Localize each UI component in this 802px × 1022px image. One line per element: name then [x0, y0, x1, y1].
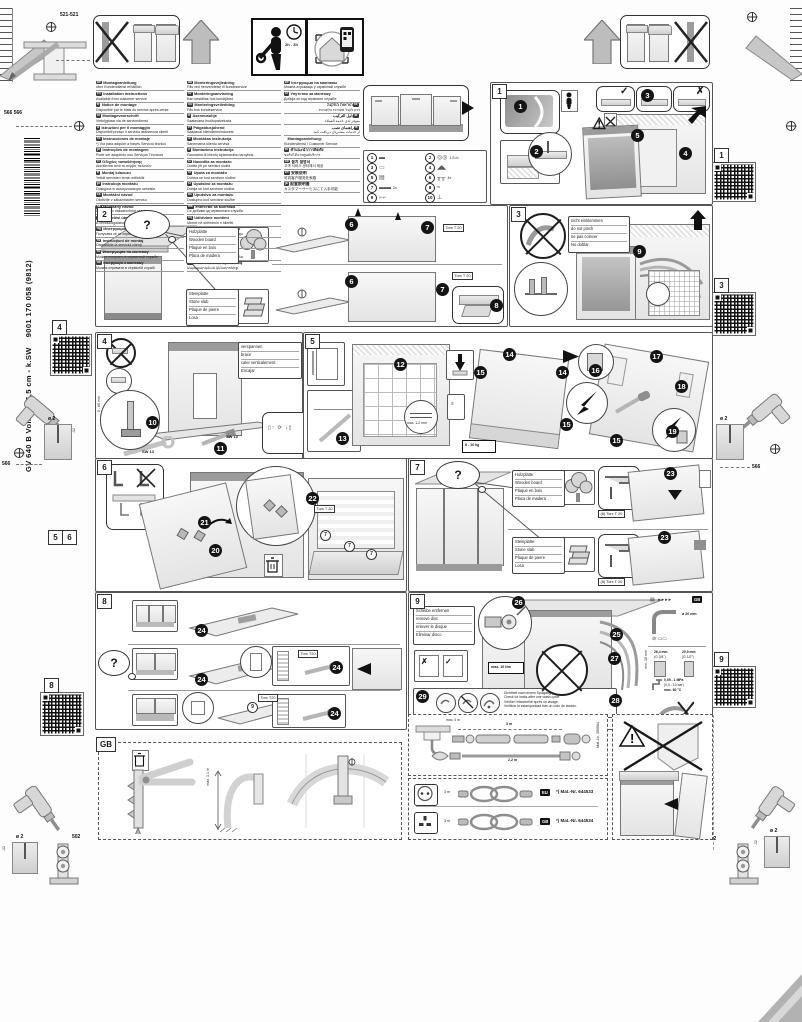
plinth [416, 564, 502, 571]
ext-max-length: max. 4 m [446, 718, 460, 722]
language-entry: etPaigaldusjuhend Saadaval klienditeenin… [187, 125, 281, 136]
qr-code-step1 [712, 162, 756, 202]
language-subtitle: Disponible par le biais du service après… [96, 108, 184, 112]
step-number-bubble: 2 [530, 145, 543, 158]
dim-566-left: 566 [2, 461, 10, 467]
hinge-part-icon [48, 842, 82, 886]
stone-note-box: Steinplatte Stone slab Plaque de pierre … [186, 289, 239, 326]
part-shape-icon: ⊥ [437, 195, 442, 201]
language-code-badge: tr [96, 171, 100, 175]
step-number-bubble: 15 [610, 434, 623, 447]
thread-right: 20,9 mm [682, 650, 696, 654]
min-clearance: min. 10 mm [644, 650, 648, 669]
door-corner [352, 648, 402, 690]
note-line: Wooden board [189, 237, 236, 245]
part-item: 5 ▤ [367, 173, 425, 183]
language-code-badge: th [284, 148, 289, 152]
arrow-right-icon [563, 350, 579, 363]
bracket-rail-drawing [272, 284, 354, 320]
stone-icon-box [237, 289, 269, 324]
language-title: คำแนะนำการติดตั้ง [291, 148, 324, 152]
note-line: Steinplatte [515, 539, 562, 547]
qr-code-step9 [712, 666, 756, 708]
pilot-hole-block [764, 836, 790, 868]
step-number-bubble: 19 [666, 425, 679, 438]
pencil-counter-icon [6, 32, 90, 82]
language-subtitle: Можна отримати в сервісній службі [96, 266, 184, 270]
language-entry: ja設置説明書 カスタマーサービスにて入手可能 [284, 182, 360, 193]
note-line: Eliminar disco [416, 632, 472, 639]
pressure-value: 0,05 - 1 MPa [664, 678, 683, 682]
step-number-bubble: 6 [345, 275, 358, 288]
language-subtitle: از خدمات مشتریان دریافت کنید [284, 130, 360, 134]
language-code-badge: mk [187, 205, 194, 209]
cord-mat-number: *) Mat.-Nr. 644534 [556, 818, 593, 824]
cord-length: 3 m [444, 790, 450, 795]
language-title: Montaj kılavuzu [102, 171, 131, 175]
language-title: Udhëzime montimi [194, 216, 229, 220]
brace-note: verspannen brace caler verticalement Enc… [238, 342, 302, 379]
install-time: 2h - 3h [285, 42, 298, 47]
insert-arrow-box [446, 350, 474, 380]
language-subtitle: Fås hos kundeservice [187, 108, 281, 112]
language-subtitle: *) Vía para adquirir a través Servicio t… [96, 142, 184, 146]
language-code-badge: it [96, 126, 100, 130]
registration-mark [46, 22, 56, 32]
part-item: 4 ◢◣ [425, 163, 483, 173]
note-line: Scheibe entfernen [416, 608, 472, 616]
bracket-rail-drawing [272, 222, 354, 258]
cabinet-profile-icon [627, 24, 645, 62]
socket-eu-icon [414, 784, 438, 806]
language-title: Інструкцыя па мантажы [291, 81, 337, 85]
cabinet-front [444, 488, 478, 566]
language-entry: heהוראות התקנה ניתן לקבל משירות הלקוחות [284, 103, 360, 114]
remove-disc-note: Scheibe entfernen remove disc enlever le… [413, 606, 475, 645]
step9-label: 9 [410, 594, 425, 609]
step-number-bubble: 7 [421, 221, 434, 234]
step-number-bubble: 4 [679, 147, 692, 160]
dim-566-right: 566 [752, 464, 760, 470]
order-number: 9001 170 058 (9812) [24, 260, 33, 337]
language-title: Uputstvo za montažu [194, 182, 233, 186]
part-number: 1 [367, 153, 377, 163]
language-subtitle: Saatavana huoltopalvelusta [187, 119, 281, 123]
step-number-bubble: 7 [436, 283, 449, 296]
language-subtitle: Disponibili presso il servizio assistenz… [96, 130, 184, 134]
step7-label: 7 [410, 460, 425, 475]
step2-label: 2 [97, 207, 112, 222]
language-entry: Montageanleitung: Kundendienst / Custome… [284, 136, 360, 147]
language-entry: hrUputa za montažu Dobiva se kod servisn… [187, 170, 281, 181]
row-divider [272, 264, 502, 265]
screwdriver-icon [612, 390, 652, 416]
language-entry: lvMontāžas instrukcija Saņemama klientu … [187, 136, 281, 147]
phone-scan-icon [310, 23, 360, 71]
language-title: Montageanleitung [103, 81, 136, 85]
cabinet-variant-thumb [132, 600, 178, 632]
dispose-box [264, 554, 283, 577]
drill-depth: -12 [754, 840, 758, 845]
part-item: 10 ⊥ [425, 193, 483, 203]
pressure-bar: (0,5 - 10 bar) [664, 683, 684, 687]
ext-mat-number: Mat.-Nr. 350564 [596, 722, 600, 748]
language-title: Montážní návod [103, 193, 132, 197]
language-title: Navodila za montažo [193, 160, 231, 164]
step-number-bubble: 24 [195, 673, 208, 686]
step1-label: 1 [492, 84, 507, 99]
row-divider [128, 690, 400, 691]
language-code-badge: el [96, 160, 101, 164]
rail-ok-box [596, 86, 635, 112]
language-code-badge: fa [354, 126, 359, 130]
step-number-bubble: 22 [306, 492, 319, 505]
language-subtitle: Pode ser adquirido nos Serviços Técnicos [96, 153, 184, 157]
question-cloud: ? [436, 461, 480, 489]
part-shape-icon: ▬▬ [379, 185, 391, 191]
language-code-badge: ar [353, 114, 358, 118]
clock-icon [286, 24, 302, 40]
language-entry: esInstrucciones de montaje *) Vía para a… [96, 136, 184, 147]
part-shape-icon: ▤ [379, 175, 385, 181]
step-number-bubble: 12 [394, 358, 407, 371]
part-shape-icon: ▭ [379, 165, 385, 171]
language-code-badge: bs [187, 193, 193, 197]
drain-diameter: ø 20 mm [682, 612, 697, 617]
registration-mark [786, 121, 796, 131]
language-subtitle: Dobiva se kod servisne službe [187, 176, 281, 180]
step-number-bubble: 16 [589, 364, 602, 377]
language-subtitle: Kundendienst / Customer Service [284, 142, 360, 146]
hose-chain-top [452, 732, 592, 746]
torx-label: Torx T20 [258, 694, 278, 702]
language-code-badge: lt [187, 148, 191, 152]
arrow-left-icon [664, 798, 678, 810]
step-number-bubble: 8 [490, 299, 503, 312]
language-subtitle: Добија се код сервисне службе [284, 97, 360, 101]
language-code-badge: sl [187, 160, 192, 164]
note-line: do not pinch [571, 226, 627, 234]
language-title: Instruções de montagem [103, 148, 149, 152]
magnifier-detail [646, 282, 670, 306]
fitting-icon [654, 661, 666, 677]
language-code-badge: ko [284, 160, 290, 164]
qr-label-1: 1 [714, 148, 729, 163]
cross-icon: ✗ [421, 657, 428, 666]
leader-dash [16, 126, 72, 127]
language-title: Инструкция по монтажу [103, 250, 149, 254]
language-subtitle: Available from customer service [96, 97, 184, 101]
step-number-bubble: 27 [608, 652, 621, 665]
screw-ref: 7 [320, 530, 331, 541]
language-code-badge: ru [96, 250, 101, 254]
screw-ref: 9 [247, 702, 258, 713]
cabinet-profile-icon [156, 24, 176, 62]
language-code-badge: et [187, 126, 192, 130]
language-entry: srUputstvo za montažu Dobija se kod serv… [187, 182, 281, 193]
language-title: Uputstvo za montažu [194, 193, 233, 197]
language-subtitle: Verkrijgbaar via de servicedienst [96, 119, 184, 123]
part-shape-icon: ╥╥ [437, 175, 446, 181]
torx-label: Torx T 20 [314, 505, 335, 513]
drill-diameter: ø 2 [720, 416, 727, 422]
part-item: 3 ▭ [367, 163, 425, 173]
trash-bin-icon [265, 555, 280, 574]
part-shape-icon: ⌐⌐ [379, 195, 386, 201]
step-number-bubble: 24 [330, 661, 343, 674]
thread-right2: (G 1/2") [682, 655, 694, 659]
language-subtitle: ניתן לקבל משירות הלקוחות [284, 108, 360, 112]
language-entry: daMonteringsvejledning Fås ved henvendel… [187, 80, 281, 91]
screw-down-arrows [352, 208, 412, 222]
part-shape-icon: ▬ [379, 155, 385, 161]
tree-icon-box [562, 470, 595, 505]
gb-flag-badge: GB [692, 596, 702, 603]
pilot-hole-block [12, 842, 38, 874]
language-title: Інструкція з монтажу [103, 261, 143, 265]
part-item: 1 ▬ [367, 153, 425, 163]
note-line: Plaque en bois [189, 245, 236, 253]
language-subtitle: カスタマーサービスにて入手可能 [284, 187, 360, 191]
step-number-bubble: 1 [514, 100, 527, 113]
part-item: 8 ≈ [425, 183, 483, 193]
language-entry: ko설치 설명서 고객 서비스 센터에서 제공 [284, 159, 360, 170]
language-entry: plInstrukcja montażu Dostępna w autoryzo… [96, 182, 184, 193]
language-title: Asennusohje [192, 114, 216, 118]
ext-bottom-length: 2,2 m [508, 758, 517, 763]
note-line: Holzplatte [515, 472, 562, 480]
thread-left2: (G 3/4") [654, 655, 666, 659]
language-code-badge: uk [96, 261, 102, 265]
torx-label: Torx T 20 [443, 224, 464, 232]
language-title: הוראות התקנה [327, 103, 353, 107]
note-line: brace [241, 352, 299, 360]
step-number-bubble: 15 [560, 418, 573, 431]
language-entry: deMontageanleitung über Kundendienst erh… [96, 80, 184, 91]
cord-mat-number: *) Mat.-Nr. 644533 [556, 789, 593, 795]
language-subtitle: 고객 서비스 센터에서 제공 [284, 164, 360, 168]
trim-dash-line [713, 715, 714, 850]
language-title: Uputa za montažu [194, 171, 227, 175]
cross-out-icon [94, 18, 130, 66]
language-subtitle: Saadaval klienditeenindusest [187, 130, 281, 134]
language-title: 설치 설명서 [291, 160, 310, 164]
person-icon [562, 91, 575, 109]
socket-size-label: SW 10 [226, 434, 238, 439]
note-line: Holzplatte [189, 229, 236, 237]
thread-left: 26,4 mm [654, 650, 668, 654]
leader-dash [56, 60, 90, 61]
language-subtitle: Dobite jih pri servisni službi [187, 164, 281, 168]
step-number-bubble: 5 [631, 129, 644, 142]
note-line: Placa de madera [189, 253, 236, 260]
language-title: 安装说明 [291, 171, 307, 175]
language-subtitle: Dostępna w autoryzowanym serwisie [96, 187, 184, 191]
registration-mark [747, 12, 757, 22]
part-number: 3 [367, 163, 377, 173]
corner-fold-top-right-icon [742, 22, 802, 80]
note-line: Stone slab [515, 547, 562, 555]
cabinet-front [371, 96, 399, 126]
language-code-badge: fi [187, 114, 191, 118]
language-code-badge: pt [96, 148, 101, 152]
language-list-col3: beІнструкцыя па мантажы Можна атрымаць у… [284, 80, 360, 193]
cabinet-front [416, 488, 444, 566]
drill-depth: -12 [72, 428, 76, 433]
torx-label: Torx T20 [298, 650, 318, 658]
part-item: 7 ▬▬ 2x [367, 183, 425, 193]
language-title: Monteringsveiledning [194, 103, 234, 107]
counter-corner-bottom [348, 272, 436, 322]
language-title: Montavimo instrukcija [192, 148, 233, 152]
note-line: Stone slab [189, 299, 236, 307]
flex-curve [531, 95, 553, 129]
panel-weight: 8 - 10 kg [465, 443, 479, 448]
note-line: Wooden board [515, 480, 562, 488]
fast-forward-glyphs: ▤ ▸▸▸▸ [650, 597, 672, 604]
kitchen-run-box [363, 85, 469, 141]
cabinet-profile-icon [134, 24, 152, 62]
language-title: 設置説明書 [290, 182, 309, 186]
step-number-bubble: 23 [658, 531, 671, 544]
dim-502-left: 502 [72, 834, 80, 840]
hose-lines [592, 614, 652, 694]
language-entry: beІнструкцыя па мантажы Можна атрымаць у… [284, 80, 360, 91]
tap-icon [650, 676, 664, 692]
registration-mark [770, 444, 780, 454]
language-code-badge: sq [187, 216, 193, 220]
language-entry: enInstallation instructions Available fr… [96, 91, 184, 102]
cabinet-front [478, 488, 504, 566]
note-line: No doblar [571, 242, 627, 249]
dim-left-pair: 566 566 [4, 110, 22, 116]
language-subtitle: Disponibile la serviciul clienţi [96, 243, 184, 247]
max-temp: max. 60 °C [664, 688, 681, 692]
cabinet-variant-thumb [132, 694, 178, 726]
no-kink-icon [536, 644, 588, 696]
arrow-up-icon [690, 210, 706, 230]
spacer-part [699, 470, 711, 488]
qr-label-8: 8 [44, 678, 59, 693]
wood-note-box: Holzplatte Wooden board Plaque en bois P… [186, 227, 239, 264]
step5-label: 5 [305, 334, 320, 349]
panel-type-warning-box-right [620, 15, 710, 69]
cross-icon: ✗ [696, 86, 704, 97]
torx-ref-label: (8) Torx T 20 [598, 510, 625, 518]
door-panel-tilted [469, 349, 569, 449]
dishwasher-unit [576, 246, 636, 320]
language-entry: thคำแนะนำการติดตั้ง ขอรับได้จากศูนย์บริก… [284, 148, 360, 159]
svg-text:!: ! [630, 731, 634, 746]
language-subtitle: متوفر لدى خدمة العملاء [284, 119, 360, 123]
note-line: Losa [189, 315, 236, 322]
language-title: Monteringsanvisning [194, 92, 233, 96]
language-code-badge: pl [96, 182, 101, 186]
cord-length: 3 m [444, 819, 450, 824]
language-list-col1: deMontageanleitung über Kundendienst erh… [96, 80, 184, 272]
power-cable-icon [458, 812, 534, 832]
no-pinch-icon [520, 213, 566, 259]
step1-detail1-box [500, 90, 560, 134]
note-line: remove disc [416, 616, 472, 624]
language-title: Installation instructions [103, 92, 147, 96]
plug-type-badge: EU [540, 789, 550, 796]
drain-spout-icon [650, 608, 680, 638]
language-entry: nlMontagevoorschrift Verkrijgbaar via de… [96, 114, 184, 125]
language-title: Instrukcja montażu [102, 182, 137, 186]
socket-uk-icon [414, 812, 438, 834]
part-shape-icon: ≈ [437, 185, 440, 191]
power-cable-icon [458, 784, 534, 804]
installer-time-box: 2h - 3h [251, 18, 307, 76]
step4-label: 4 [97, 334, 112, 349]
step-number-bubble: 3 [641, 89, 654, 102]
spacer-block [694, 540, 706, 550]
pilot-hole-block [44, 424, 72, 460]
language-entry: mkУпатство за монтажа Се добива од серви… [187, 204, 281, 215]
instruction-sheet: 521-521 2h - 3h [0, 0, 802, 1022]
no-tilt-icon [604, 113, 617, 126]
language-code-badge: bg [96, 227, 102, 231]
row-divider [508, 529, 708, 530]
language-code-badge: da [187, 81, 193, 85]
magnifier-detail [240, 646, 272, 678]
registration-mark [74, 121, 84, 131]
language-entry: itIstruzioni per il montaggio Disponibil… [96, 125, 184, 136]
hook-magnifier [566, 382, 608, 424]
language-subtitle: Gaunama iš klientų aptarnavimo tarnybos [187, 153, 281, 157]
part-item: 9 ⌐⌐ [367, 193, 425, 203]
language-code-badge: cs [96, 193, 102, 197]
language-title: Instrucciones de montaje [103, 137, 150, 141]
foot-range: 0 - 60 mm [97, 396, 101, 412]
leak-line: Verificar la estanqueidad tras un ciclo … [504, 704, 614, 708]
language-subtitle: Obdržíte v zákaznickém servisu [96, 198, 184, 202]
drill-diameter: ø 2 [770, 828, 777, 834]
language-entry: slNavodila za montažo Dobite jih pri ser… [187, 159, 281, 170]
drill-depth: -12 [2, 846, 6, 851]
language-code-badge: nl [96, 114, 101, 118]
language-subtitle: Dostupno kod servisne službe [187, 198, 281, 202]
part-item: 6 ╥╥ 4x [425, 173, 483, 183]
magnifier-detail [514, 262, 568, 316]
language-title: Montāžas instrukcija [193, 137, 231, 141]
step6-label: 6 [97, 460, 112, 475]
stone-note-box: Steinplatte Stone slab Plaque de pierre … [512, 537, 565, 574]
gap-label: max. 1-2 mm [407, 421, 427, 425]
note-line: enlever le disque [416, 624, 472, 632]
language-code-badge: sr [284, 92, 289, 96]
torx-ref-label: (8) Torx T 20 [598, 578, 625, 586]
standpipe-drawing [212, 752, 276, 832]
language-code-badge: es [96, 137, 102, 141]
language-title: Montagevoorschrift [102, 114, 138, 118]
question-cloud: ? [124, 210, 170, 239]
language-entry: bsUputstvo za montažu Dostupno kod servi… [187, 193, 281, 204]
fitting-glyphs: ⊘ ▭▭ [652, 636, 667, 643]
no-lift-warning-drawing: ! [618, 718, 706, 774]
language-title: Notice de montage [102, 103, 137, 107]
language-entry: elΟδηγίες τοποθέτησης Διατίθενται από το… [96, 159, 184, 170]
language-code-badge: de [96, 81, 102, 85]
leader-dash [16, 464, 42, 465]
note-line: Placa de madera [515, 496, 562, 503]
language-entry: srУпутство за монтажу Добија се код серв… [284, 91, 360, 102]
drill-diameter: ø 2 [16, 834, 23, 840]
corner-fold-bottom-right-icon [758, 974, 802, 1022]
language-code-badge: ja [284, 182, 289, 186]
weight-badge: 8 - 10 kg [462, 440, 496, 453]
